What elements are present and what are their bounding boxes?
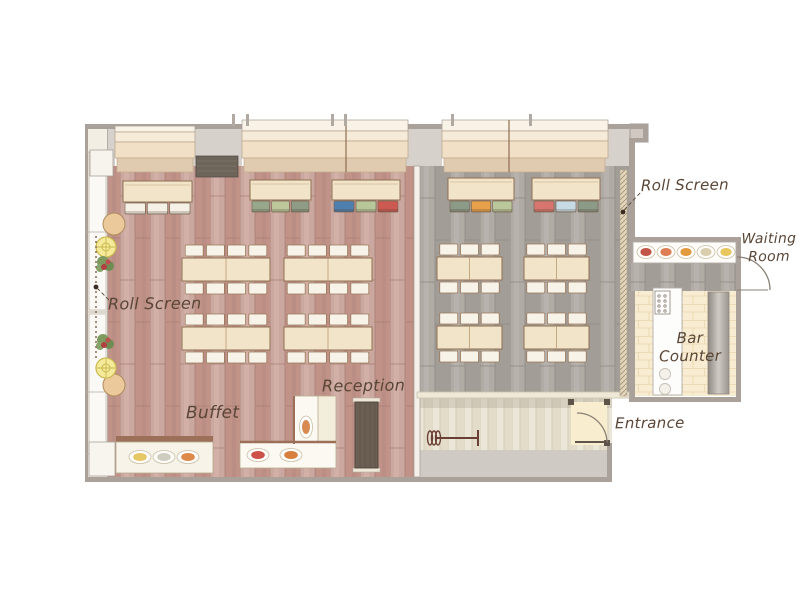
dining-chair	[249, 245, 267, 256]
label-bar-counter: Bar Counter	[652, 329, 728, 366]
dining-table	[532, 178, 600, 200]
dining-chair	[548, 282, 566, 293]
dining-chair	[568, 282, 586, 293]
dining-chair	[548, 244, 566, 255]
label-roll-screen-right: Roll Screen	[641, 176, 729, 195]
dining-chair	[330, 314, 348, 325]
banquette-table-group	[532, 178, 600, 212]
banquette-table-group	[250, 180, 311, 212]
dining-chair	[481, 351, 499, 362]
chair-shadow	[356, 209, 376, 212]
food	[302, 420, 310, 434]
dining-chair	[185, 245, 203, 256]
dining-chair	[461, 313, 479, 324]
dining-chair	[527, 313, 545, 324]
banquette-table-group	[123, 181, 192, 214]
chair-shadow	[252, 209, 270, 212]
dining-chair	[287, 245, 305, 256]
food	[680, 248, 691, 256]
chair-shadow	[450, 209, 469, 212]
room-divider-wall	[414, 166, 420, 477]
entrance-floor	[571, 402, 607, 445]
dining-chair	[527, 282, 545, 293]
label-waiting-room: Waiting Room	[737, 230, 800, 267]
dining-chair	[228, 283, 246, 294]
chair-shadow	[471, 209, 490, 212]
dining-chair	[351, 314, 369, 325]
banquette-benches	[115, 120, 608, 177]
dining-chair	[185, 314, 203, 325]
dining-chair	[287, 314, 305, 325]
dining-chair	[206, 314, 224, 325]
food	[157, 453, 171, 461]
dining-chair	[481, 282, 499, 293]
dining-table-group	[524, 244, 589, 293]
dining-table-group	[437, 313, 502, 362]
dining-chair	[228, 352, 246, 363]
chair-shadow	[556, 209, 576, 212]
chair-shadow	[493, 209, 512, 212]
chair-shadow	[272, 209, 290, 212]
dining-chair	[308, 314, 326, 325]
dining-chair	[185, 283, 203, 294]
exterior-slab	[415, 448, 612, 477]
roll-screen-marker	[621, 210, 626, 215]
label-entrance: Entrance	[615, 414, 685, 433]
dining-table	[448, 178, 514, 200]
round-table	[103, 213, 125, 235]
floor-plan: Roll Screen Waiting Room Bar Counter Ent…	[0, 0, 800, 600]
dining-chair	[461, 282, 479, 293]
decor-wheel	[96, 237, 116, 257]
dining-chair	[440, 351, 458, 362]
food	[251, 451, 265, 459]
dining-chair	[249, 314, 267, 325]
dining-chair	[481, 313, 499, 324]
waiting-room-floor	[629, 263, 736, 291]
dining-chair	[330, 352, 348, 363]
dining-chair	[568, 351, 586, 362]
label-roll-screen-left: Roll Screen	[108, 295, 202, 314]
dining-table	[332, 180, 400, 200]
dining-chair	[351, 283, 369, 294]
dining-table	[250, 180, 311, 200]
bar-stool	[660, 384, 671, 395]
food	[720, 248, 731, 256]
display-dishes	[637, 246, 735, 259]
chair-shadow	[578, 209, 598, 212]
dining-chair	[206, 245, 224, 256]
dining-chair	[527, 351, 545, 362]
dining-chair	[249, 283, 267, 294]
chair-shadow	[170, 211, 190, 214]
dining-chair	[185, 352, 203, 363]
banquette-table-group	[448, 178, 514, 212]
dining-chair	[206, 352, 224, 363]
food	[133, 453, 147, 461]
dining-chair	[308, 283, 326, 294]
dining-chair	[287, 352, 305, 363]
label-buffet: Buffet	[186, 404, 240, 423]
banquette-table-group	[332, 180, 400, 212]
food	[181, 453, 195, 461]
dining-chair	[228, 314, 246, 325]
menu-stand	[655, 291, 670, 314]
chair-shadow	[291, 209, 309, 212]
dining-chair	[440, 282, 458, 293]
dining-chair	[287, 283, 305, 294]
dining-chair	[330, 245, 348, 256]
dining-chair	[308, 352, 326, 363]
dining-chair	[249, 352, 267, 363]
dining-chair	[568, 244, 586, 255]
dining-chair	[440, 244, 458, 255]
food	[284, 451, 298, 459]
corner-cabinet	[90, 150, 113, 176]
dark-wood-panel	[196, 156, 238, 177]
dining-table-group	[524, 313, 589, 362]
dining-chair	[228, 245, 246, 256]
chair-shadow	[125, 211, 145, 214]
dining-table-group	[437, 244, 502, 293]
dining-chair	[308, 245, 326, 256]
chair-shadow	[378, 209, 398, 212]
dining-chair	[440, 313, 458, 324]
dining-chair	[330, 283, 348, 294]
dining-chair	[351, 352, 369, 363]
dining-chair	[548, 313, 566, 324]
chair-shadow	[534, 209, 554, 212]
dining-chair	[206, 283, 224, 294]
chair-shadow	[334, 209, 354, 212]
corridor-lintel	[417, 392, 629, 398]
label-reception: Reception	[322, 377, 405, 396]
corner-cabinet	[89, 442, 115, 476]
dining-chair	[568, 313, 586, 324]
dining-chair	[527, 244, 545, 255]
dining-chair	[461, 351, 479, 362]
food	[640, 248, 651, 256]
dining-chair	[351, 245, 369, 256]
dining-chair	[481, 244, 499, 255]
food	[700, 248, 711, 256]
bar-stool	[660, 369, 671, 380]
reception-door	[353, 398, 380, 472]
dining-chair	[548, 351, 566, 362]
decor-wheel	[96, 358, 116, 378]
chair-shadow	[147, 211, 167, 214]
dining-table	[123, 181, 192, 202]
dining-chair	[461, 244, 479, 255]
food	[660, 248, 671, 256]
